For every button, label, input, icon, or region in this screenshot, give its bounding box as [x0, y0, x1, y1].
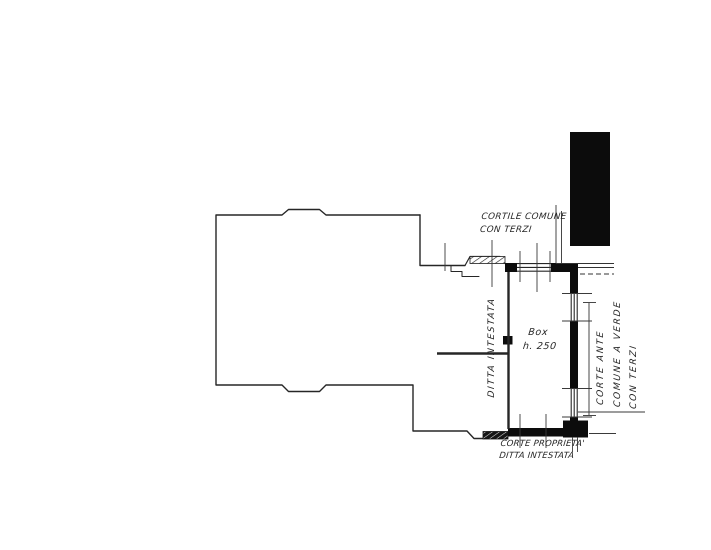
window-symbol-right-lower [571, 389, 577, 418]
label-ditta-intestata-vertical: DITTA INTESTATA [487, 297, 497, 398]
box-right-wall-upper [570, 268, 578, 294]
label-corte-proprieta: CORTE PROPRIETA' DITTA INTESTATA [499, 439, 586, 462]
label-cortile-comune: CORTILE COMUNE CON TERZI [479, 211, 567, 236]
window-symbol-top [517, 264, 551, 272]
label-corte-ante-line1: CORTE ANTE [593, 297, 610, 406]
label-box-height: h. 250 [522, 340, 557, 354]
box-corner-blob [563, 421, 588, 438]
floor-plan-drawing [0, 0, 711, 550]
label-corte-ante-line2: COMUNE A VERDE [610, 299, 627, 408]
label-corte-proprieta-line2: DITTA INTESTATA [499, 451, 584, 463]
label-cortile-line2: CON TERZI [479, 224, 566, 237]
label-box-name: Box [528, 326, 559, 340]
passage-hatch-bottom [483, 432, 508, 440]
building-right-edge [420, 215, 465, 266]
building-perimeter [216, 210, 483, 439]
label-corte-ante-line3: CON TERZI [626, 302, 643, 411]
neighbor-building-solid [570, 132, 610, 246]
box-bottom-wall [508, 428, 568, 437]
label-box: Box h. 250 [526, 326, 559, 354]
adjacent-building-outline [216, 210, 505, 439]
label-corte-proprieta-line1: CORTE PROPRIETA' [500, 439, 585, 451]
box-top-wall-left-pier [505, 263, 517, 272]
annex-step-detail [451, 266, 479, 277]
box-right-wall-middle [570, 321, 578, 389]
label-cortile-line1: CORTILE COMUNE [481, 211, 568, 224]
passage-hatch-top [470, 257, 505, 264]
label-corte-ante: CORTE ANTE COMUNE A VERDE CON TERZI [593, 297, 643, 410]
floor-plan-sheet: CORTILE COMUNE CON TERZI Box h. 250 DITT… [0, 0, 711, 550]
window-symbol-right-upper [571, 294, 577, 322]
